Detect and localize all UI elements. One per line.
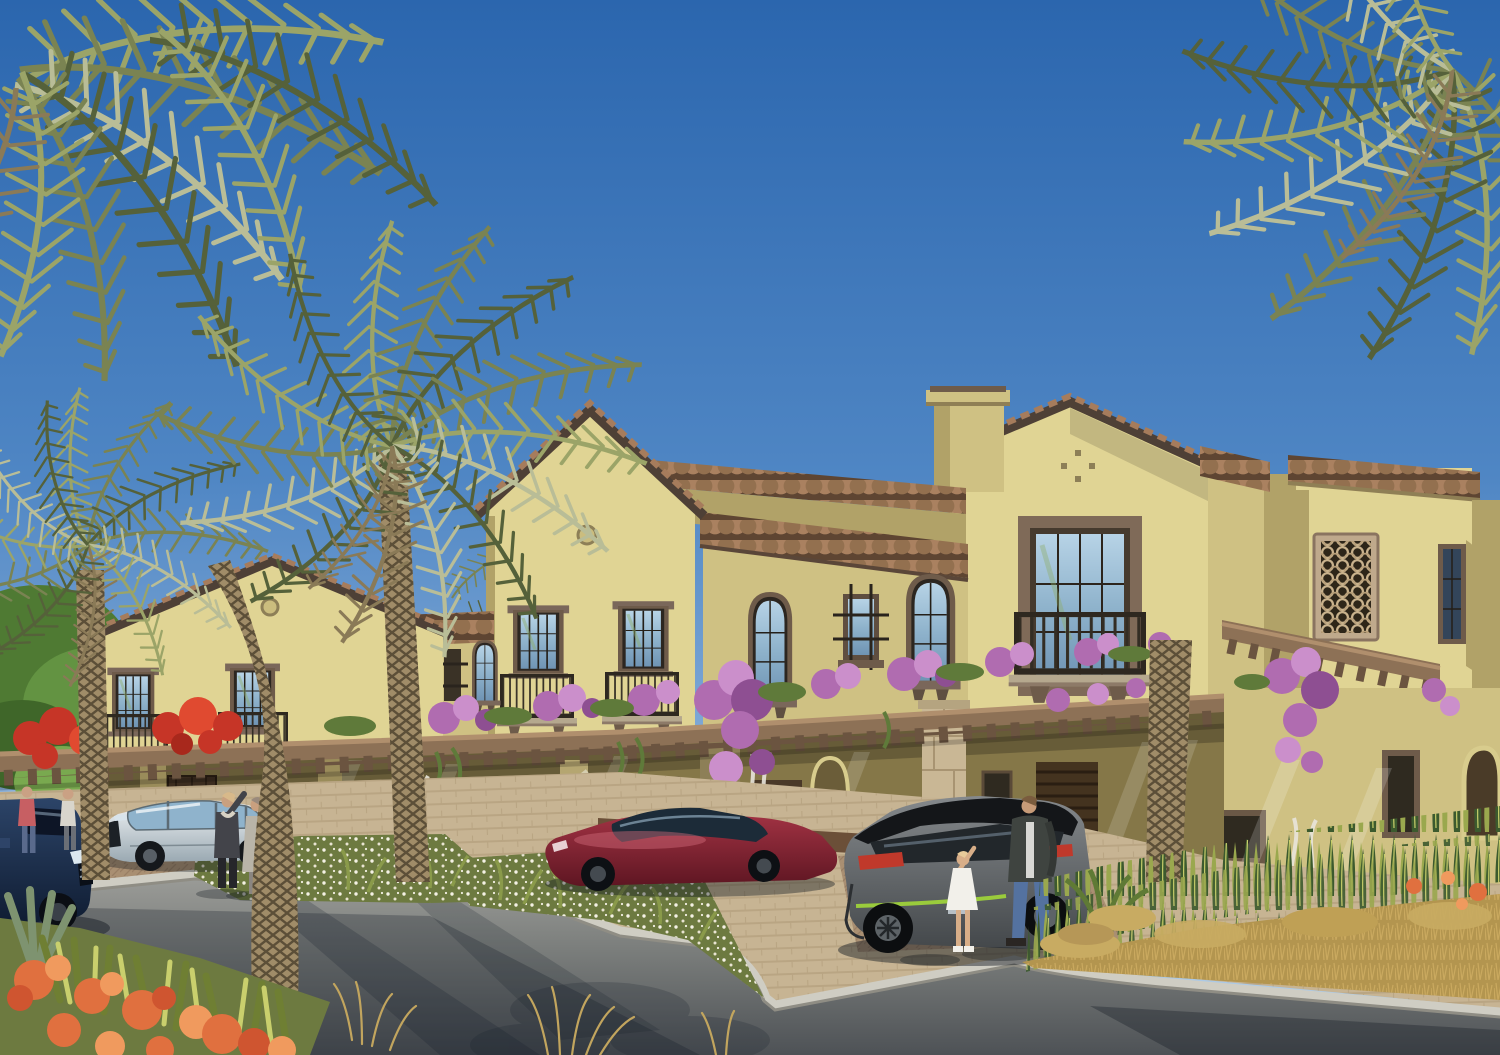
upper-window <box>613 601 675 676</box>
upper-window <box>508 605 570 678</box>
rendering-canvas: Mediterranean Townhouses — Exterior Rend… <box>0 0 1500 1055</box>
gable-medallion <box>262 599 278 615</box>
tower-side-window <box>1438 544 1466 644</box>
master-window <box>1009 516 1152 703</box>
mashrabiya-lattice-screen <box>1314 534 1378 640</box>
chimney <box>926 386 1010 492</box>
architectural-rendering <box>0 0 1500 1055</box>
